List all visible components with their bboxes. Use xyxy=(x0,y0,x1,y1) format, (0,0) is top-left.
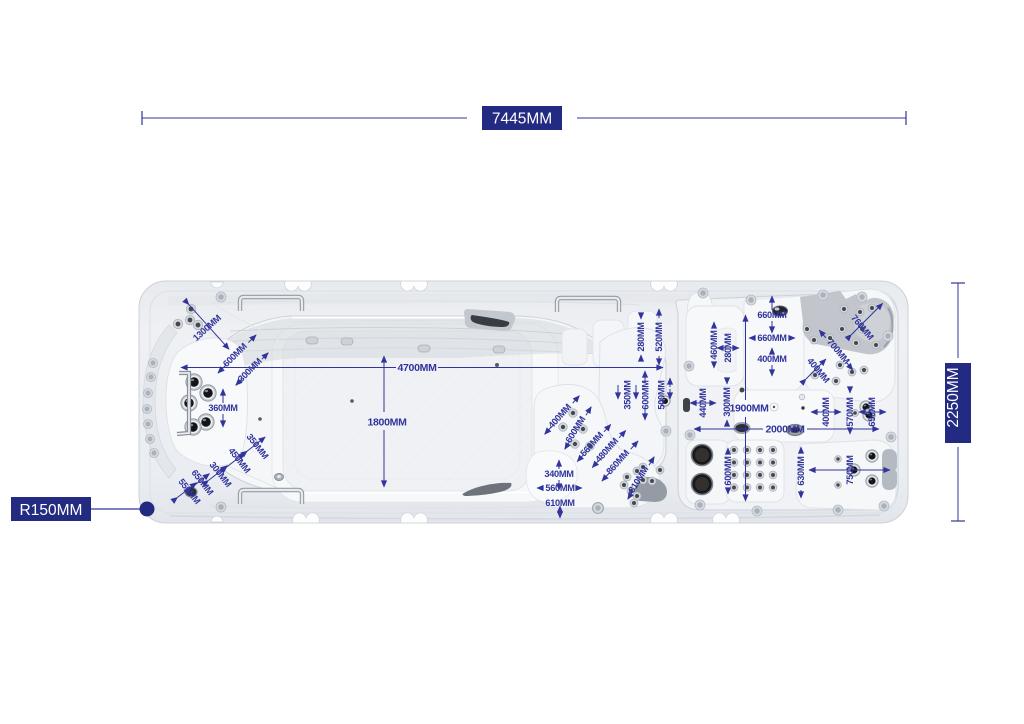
svg-text:460MM: 460MM xyxy=(709,330,719,360)
svg-text:280MM: 280MM xyxy=(723,333,733,363)
svg-text:400MM: 400MM xyxy=(821,397,831,427)
svg-text:500MM: 500MM xyxy=(657,380,667,410)
svg-text:610MM: 610MM xyxy=(545,498,575,508)
svg-text:7445MM: 7445MM xyxy=(492,111,552,128)
svg-text:280MM: 280MM xyxy=(636,322,646,352)
svg-text:2250MM: 2250MM xyxy=(945,367,962,427)
svg-text:4700MM: 4700MM xyxy=(397,362,437,374)
svg-text:650MM: 650MM xyxy=(867,397,877,427)
svg-text:440MM: 440MM xyxy=(698,388,708,418)
svg-text:350MM: 350MM xyxy=(623,380,633,410)
svg-text:560MM: 560MM xyxy=(545,483,575,493)
svg-text:600MM: 600MM xyxy=(641,380,651,410)
svg-text:600MM: 600MM xyxy=(723,456,733,486)
svg-text:R150MM: R150MM xyxy=(20,502,83,519)
svg-text:660MM: 660MM xyxy=(757,333,787,343)
svg-text:300MM: 300MM xyxy=(722,387,732,417)
svg-text:1800MM: 1800MM xyxy=(367,417,407,429)
svg-text:660MM: 660MM xyxy=(757,310,787,320)
svg-text:2000MM: 2000MM xyxy=(765,424,805,436)
svg-text:1900MM: 1900MM xyxy=(729,403,769,415)
svg-text:340MM: 340MM xyxy=(544,469,574,479)
svg-text:750MM: 750MM xyxy=(845,455,855,485)
svg-text:400MM: 400MM xyxy=(757,354,787,364)
svg-text:520MM: 520MM xyxy=(654,322,664,352)
svg-text:570MM: 570MM xyxy=(845,397,855,427)
svg-text:360MM: 360MM xyxy=(208,403,238,413)
svg-text:630MM: 630MM xyxy=(796,456,806,486)
